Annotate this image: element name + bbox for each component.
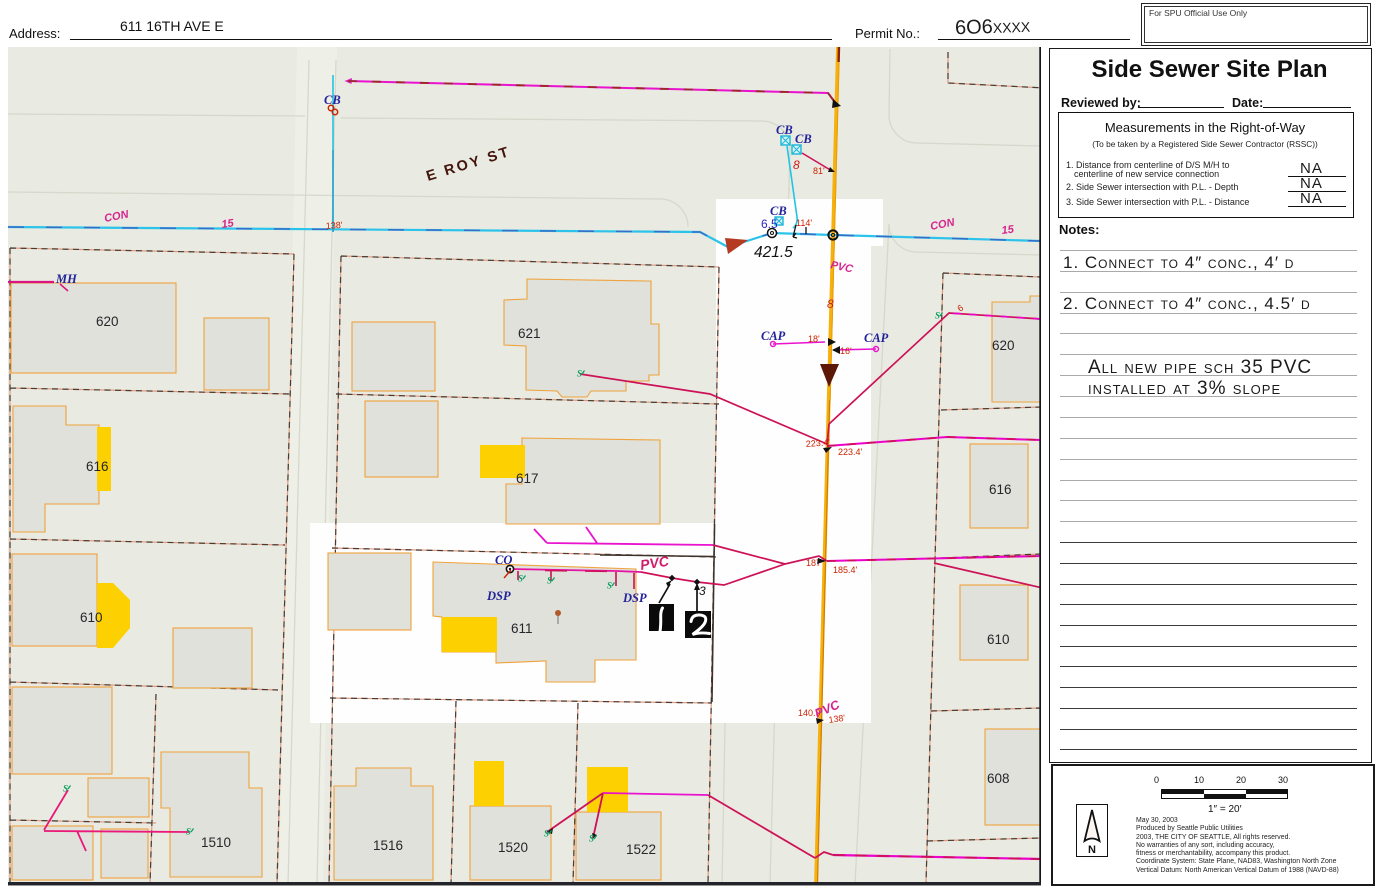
svg-text:CAP: CAP bbox=[761, 329, 786, 343]
svg-text:610: 610 bbox=[987, 632, 1010, 647]
svg-text:MH: MH bbox=[55, 272, 78, 286]
svg-text:621: 621 bbox=[518, 326, 541, 341]
svg-text:15: 15 bbox=[1001, 223, 1015, 237]
svg-text:S: S bbox=[186, 827, 191, 837]
svg-text:620: 620 bbox=[992, 338, 1015, 353]
svg-text:16': 16' bbox=[840, 346, 852, 356]
svg-text:S: S bbox=[935, 311, 940, 321]
svg-text:S: S bbox=[607, 581, 612, 591]
svg-text:616: 616 bbox=[989, 482, 1012, 497]
svg-text:S: S bbox=[544, 829, 549, 839]
svg-text:8: 8 bbox=[827, 297, 834, 311]
svg-text:6.5: 6.5 bbox=[761, 217, 778, 231]
svg-text:CB: CB bbox=[795, 132, 812, 146]
svg-text:617: 617 bbox=[516, 471, 539, 486]
svg-text:CB: CB bbox=[776, 123, 793, 137]
svg-text:138': 138' bbox=[325, 220, 343, 231]
svg-text:1516: 1516 bbox=[373, 838, 403, 853]
svg-text:CB: CB bbox=[770, 204, 787, 218]
svg-text:S: S bbox=[63, 784, 68, 794]
svg-text:S: S bbox=[547, 576, 552, 586]
svg-text:81': 81' bbox=[813, 166, 825, 176]
svg-text:421.5: 421.5 bbox=[754, 244, 793, 261]
svg-text:8: 8 bbox=[793, 158, 800, 172]
svg-text:608: 608 bbox=[987, 771, 1010, 786]
svg-text:114': 114' bbox=[796, 218, 812, 228]
svg-text:611: 611 bbox=[511, 621, 533, 636]
svg-text:1520: 1520 bbox=[498, 840, 528, 855]
svg-text:N: N bbox=[1088, 844, 1096, 856]
svg-text:223.4': 223.4' bbox=[838, 447, 863, 457]
svg-text:DSP: DSP bbox=[622, 591, 647, 605]
svg-text:DSP: DSP bbox=[486, 589, 511, 603]
svg-text:CO: CO bbox=[495, 553, 512, 567]
svg-text:18': 18' bbox=[808, 334, 820, 344]
svg-text:S: S bbox=[577, 369, 582, 379]
svg-text:620: 620 bbox=[96, 314, 119, 329]
svg-text:CAP: CAP bbox=[864, 331, 889, 345]
svg-text:S: S bbox=[518, 574, 523, 584]
svg-text:223.4': 223.4' bbox=[805, 437, 830, 449]
svg-text:CB: CB bbox=[324, 93, 341, 107]
svg-text:610: 610 bbox=[80, 610, 103, 625]
svg-text:1522: 1522 bbox=[626, 842, 656, 857]
svg-text:1510: 1510 bbox=[201, 835, 231, 850]
svg-text:616: 616 bbox=[86, 459, 109, 474]
svg-text:3: 3 bbox=[699, 584, 706, 598]
svg-text:S: S bbox=[589, 834, 594, 844]
svg-text:185.4': 185.4' bbox=[833, 565, 858, 575]
